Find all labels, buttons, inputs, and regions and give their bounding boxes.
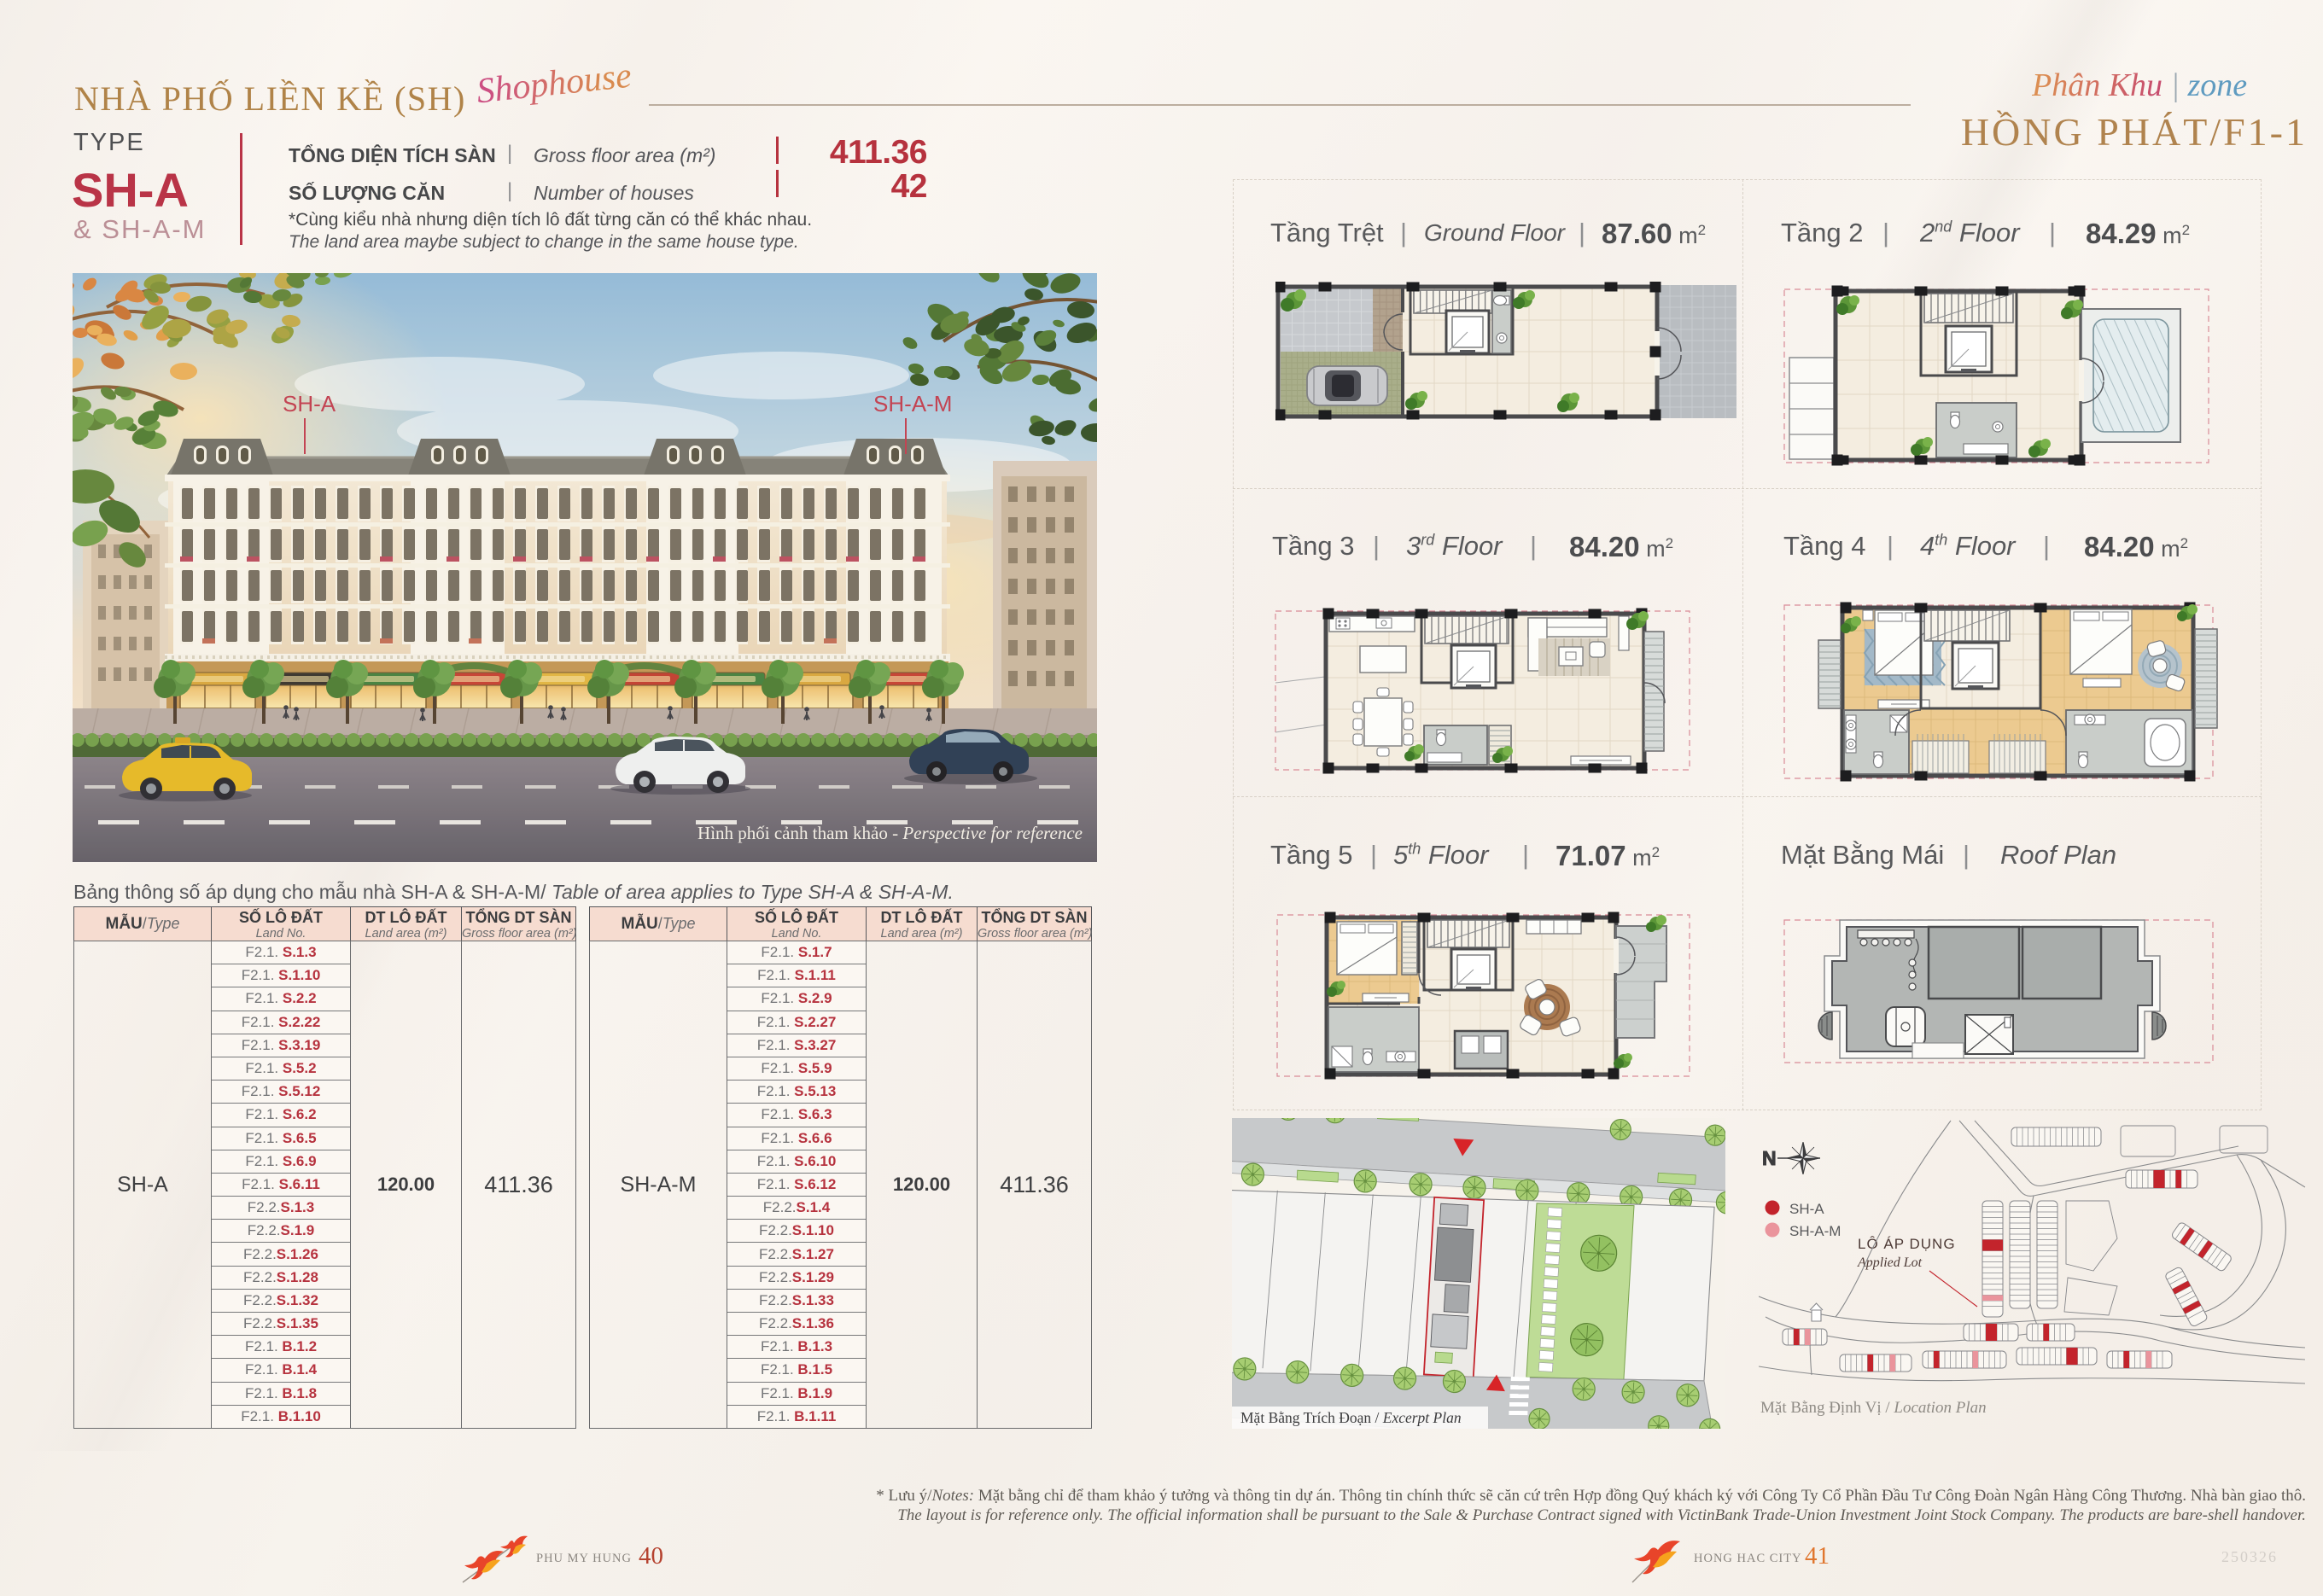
- svg-text:Mặt Bằng Trích Đoạn / Excerpt: Mặt Bằng Trích Đoạn / Excerpt Plan: [1240, 1409, 1462, 1426]
- svg-text:Hình phối cảnh tham khảo - Per: Hình phối cảnh tham khảo - Perspective f…: [697, 823, 1083, 843]
- svg-text:Applied Lot: Applied Lot: [1857, 1255, 1923, 1270]
- svg-text:Mặt Bằng Định Vị / Location Pl: Mặt Bằng Định Vị / Location Plan: [1760, 1399, 1987, 1417]
- svg-text:SH-A: SH-A: [1789, 1201, 1824, 1217]
- svg-text:SH-A-M: SH-A-M: [1789, 1223, 1841, 1239]
- svg-text:N: N: [1762, 1147, 1777, 1169]
- svg-text:LÔ ÁP DỤNG: LÔ ÁP DỤNG: [1858, 1236, 1956, 1252]
